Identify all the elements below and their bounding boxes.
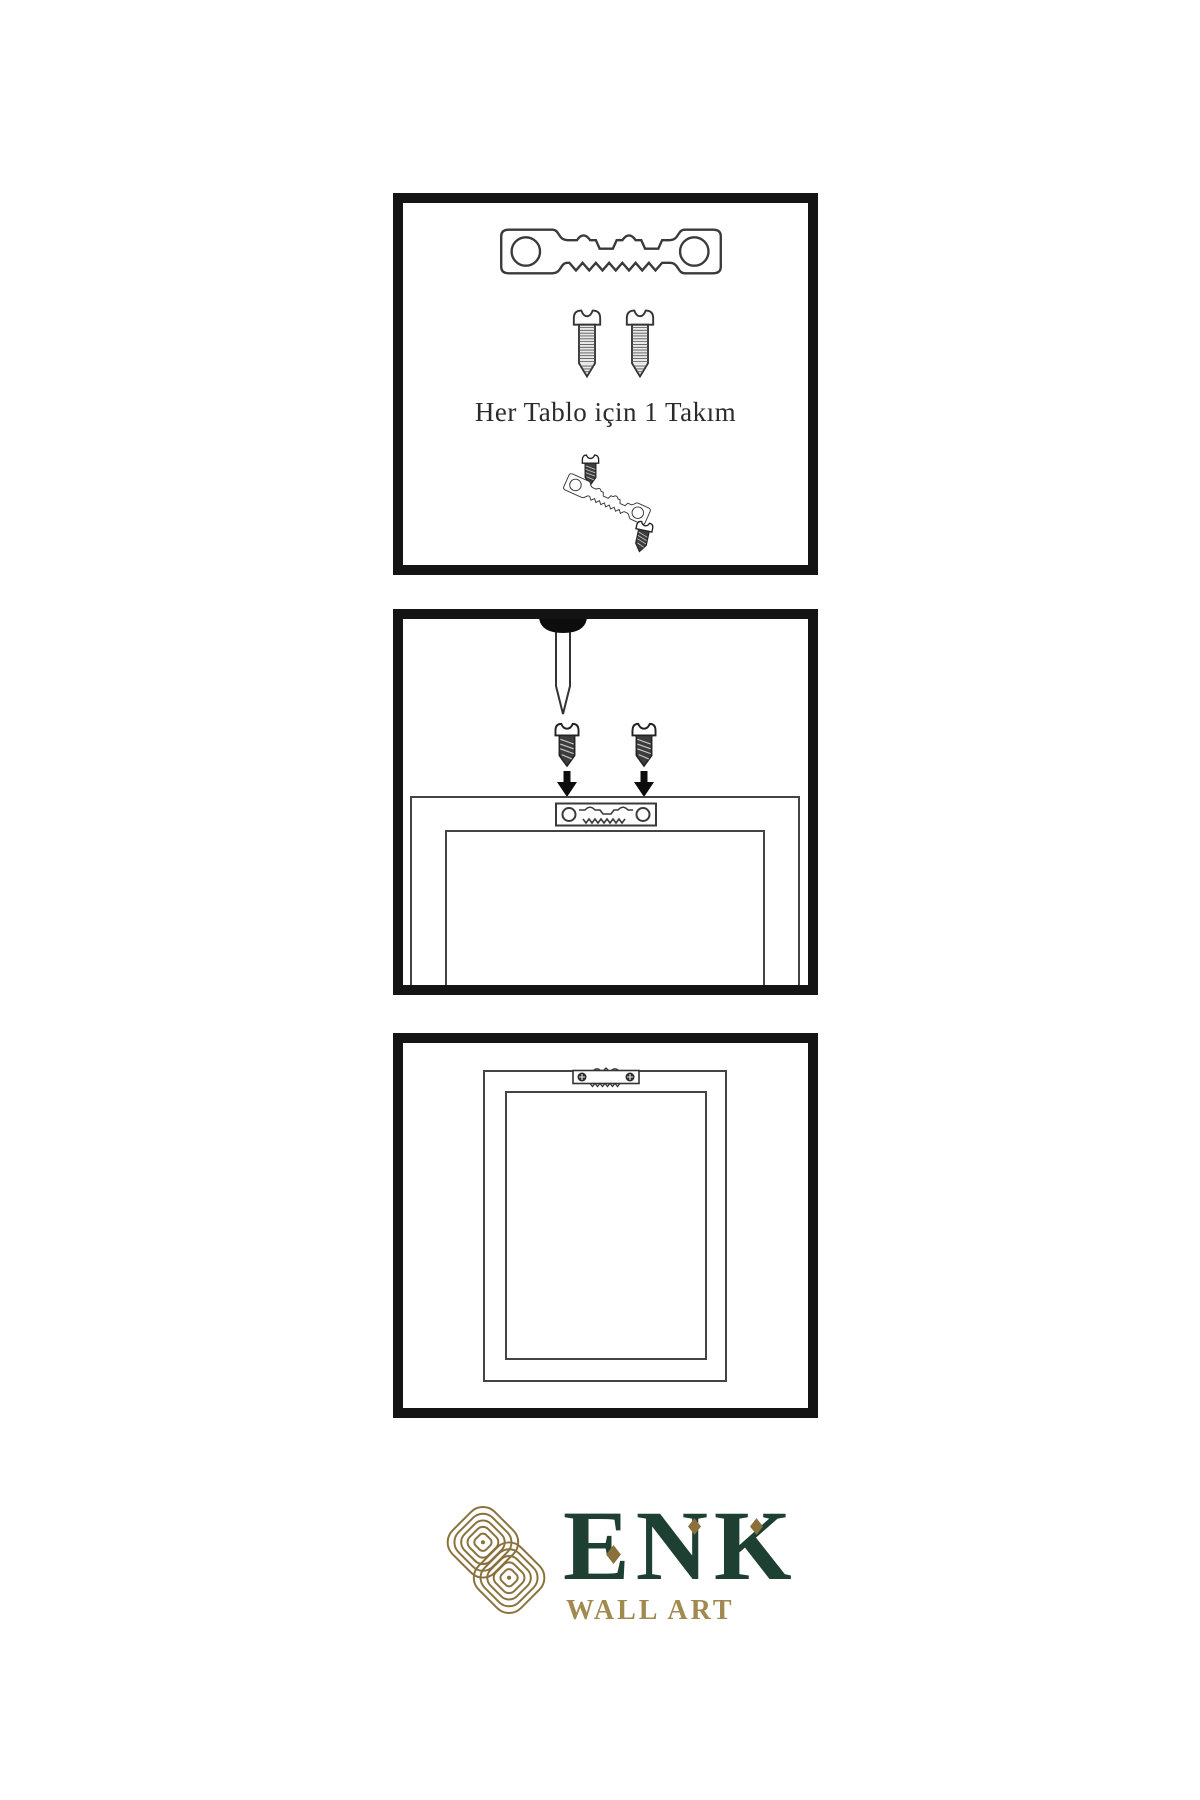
screw-icon — [630, 721, 658, 769]
arrow-down-icon — [634, 771, 654, 797]
brand-tagline: WALL ART — [566, 1595, 735, 1627]
frame-back-inner — [505, 1091, 707, 1360]
instruction-sheet: Her Tablo için 1 Takım — [0, 0, 1200, 1800]
frame-back-inner — [445, 830, 765, 995]
brand-logo: ENK WALL ART — [440, 1490, 800, 1640]
screw-icon — [553, 721, 581, 769]
sawtooth-hanger-mounted-icon — [555, 802, 657, 827]
diamond-icon — [606, 1545, 621, 1564]
arrow-down-icon — [557, 771, 577, 797]
diamond-icon — [688, 1518, 701, 1535]
panel-hanging-result — [393, 1033, 818, 1418]
screw-icon — [624, 306, 656, 381]
knot-icon — [440, 1495, 552, 1625]
nail-icon — [539, 618, 587, 720]
sawtooth-hanger-installed-icon — [572, 1066, 640, 1088]
panel-installation — [393, 609, 818, 995]
screw-icon — [630, 518, 656, 555]
diamond-icon — [750, 1518, 763, 1535]
panel-hardware-kit: Her Tablo için 1 Takım — [393, 193, 818, 575]
screw-icon — [571, 306, 603, 381]
kit-caption: Her Tablo için 1 Takım — [403, 397, 808, 428]
brand-name: ENK — [563, 1496, 798, 1596]
sawtooth-hanger-icon — [493, 225, 729, 278]
